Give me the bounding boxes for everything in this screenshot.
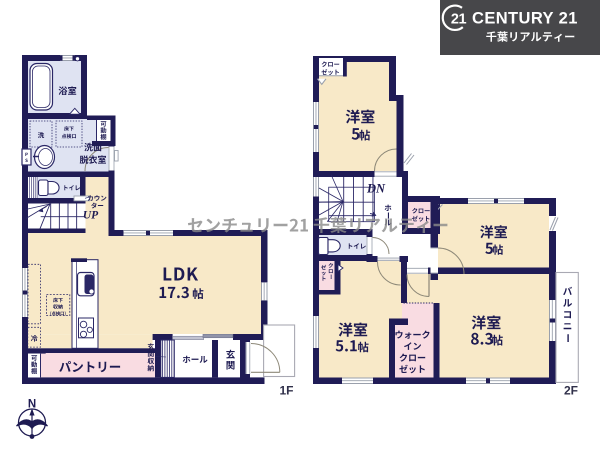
svg-text:CENTURY 21: CENTURY 21	[472, 10, 578, 28]
svg-text:2F: 2F	[564, 383, 578, 397]
svg-text:1F: 1F	[279, 383, 293, 397]
svg-text:UP: UP	[83, 210, 99, 222]
svg-text:21: 21	[451, 12, 467, 28]
svg-text:DN: DN	[366, 182, 386, 196]
